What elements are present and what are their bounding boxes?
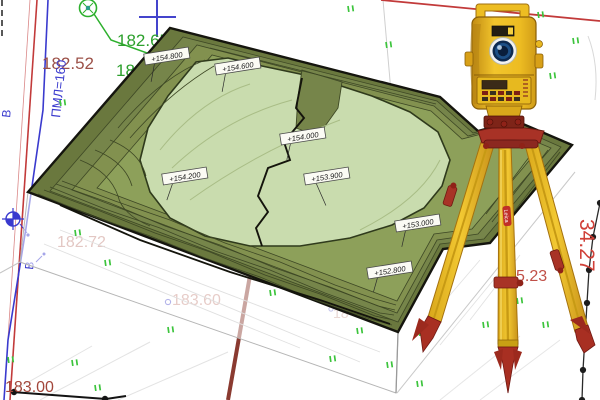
fence-node-dot — [584, 300, 590, 306]
leveling-screw — [501, 121, 507, 127]
boundary-dot — [102, 396, 108, 400]
tripod-head — [478, 127, 544, 149]
telescope-lens — [490, 38, 517, 65]
fence-node-dot — [580, 367, 586, 373]
foot-collar — [498, 340, 518, 347]
block-edge-ext — [0, 262, 20, 273]
foot-fin — [494, 349, 503, 370]
control-panel — [477, 77, 531, 104]
survey-plan-composite: 182.65 180.8 182.52 182.72 183.60 183.00… — [0, 0, 600, 400]
total-station-body — [465, 4, 543, 128]
pipeline-letter-v1: В — [0, 109, 14, 118]
grass-symbol — [95, 384, 100, 391]
grass-symbol — [8, 356, 13, 363]
svg-text:Leica: Leica — [502, 209, 509, 223]
foot-fin — [513, 349, 522, 370]
manhole-symbol — [80, 0, 97, 17]
focus-knob — [536, 41, 543, 48]
grass-symbol — [168, 326, 173, 333]
grass-symbol — [517, 297, 522, 304]
grass-symbol — [543, 321, 548, 328]
terrain-plateau — [140, 58, 450, 246]
grass-symbol — [550, 72, 555, 79]
grass-symbol — [483, 321, 488, 328]
side-tab-left — [465, 52, 473, 66]
head-hinge — [483, 143, 489, 149]
parcel-curve — [588, 36, 596, 100]
leveling-screw — [515, 119, 521, 125]
side-tab-right — [535, 54, 543, 68]
grass-symbol — [72, 359, 77, 366]
dimension-34-27: 34.27 — [575, 219, 598, 272]
grass-symbol — [348, 5, 353, 12]
survey-plan-canvas: 182.65 180.8 182.52 182.72 183.60 183.00… — [0, 0, 600, 400]
spot-height-183-00: 183.00 — [5, 379, 54, 396]
grass-symbol — [417, 380, 422, 387]
grass-symbol — [573, 37, 578, 44]
sight-button — [508, 28, 513, 35]
leveling-screw — [487, 119, 493, 125]
display-screen — [482, 81, 507, 90]
head-hinge — [519, 143, 525, 149]
grass-symbol — [386, 41, 391, 48]
